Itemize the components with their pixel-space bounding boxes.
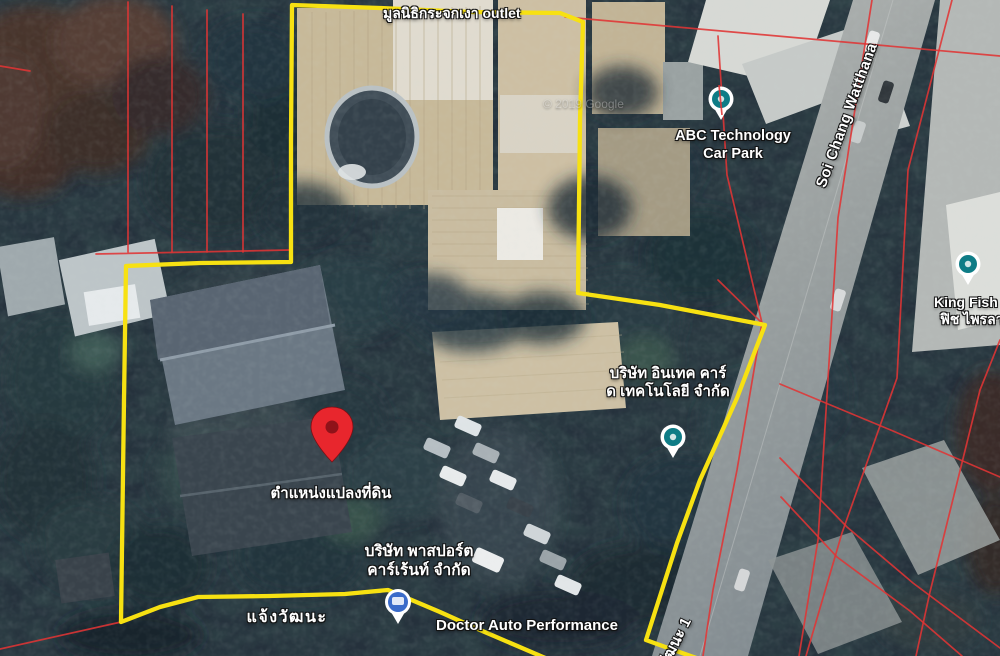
label-abc-technology[interactable]: ABC Technology Car Park: [675, 128, 791, 163]
label-plot-location: ตำแหน่งแปลงที่ดิน: [271, 485, 392, 503]
label-intech-line1: บริษัท อินเทค คาร์: [606, 365, 730, 383]
label-abc-line2: Car Park: [675, 146, 791, 164]
label-king-fish[interactable]: King Fish ฟิช ไพรลา: [934, 294, 1000, 328]
label-kingfish-line1: King Fish: [934, 294, 1000, 311]
label-intech-company[interactable]: บริษัท อินเทค คาร์ ด เทคโนโลยี จำกัด: [606, 365, 730, 402]
label-passport-line1: บริษัท พาสปอร์ต: [365, 543, 474, 562]
satellite-map-canvas[interactable]: มูลนิธิกระจกเงา outlet ABC Technology Ca…: [0, 0, 1000, 656]
label-abc-line1: ABC Technology: [675, 128, 791, 146]
label-intech-line2: ด เทคโนโลยี จำกัด: [606, 383, 730, 401]
label-kingfish-line2: ฟิช ไพรลา: [934, 311, 1000, 328]
google-watermark: © 2019 Google: [543, 97, 624, 112]
label-foundation-outlet[interactable]: มูลนิธิกระจกเงา outlet: [383, 5, 521, 22]
label-road-chaeng-watthana: แจ้งวัฒนะ: [247, 608, 328, 628]
label-passport-carrent[interactable]: บริษัท พาสปอร์ต คาร์เร้นท์ จำกัด: [365, 543, 474, 581]
label-doctor-auto-performance[interactable]: Doctor Auto Performance: [436, 617, 618, 635]
label-passport-line2: คาร์เร้นท์ จำกัด: [365, 562, 474, 581]
